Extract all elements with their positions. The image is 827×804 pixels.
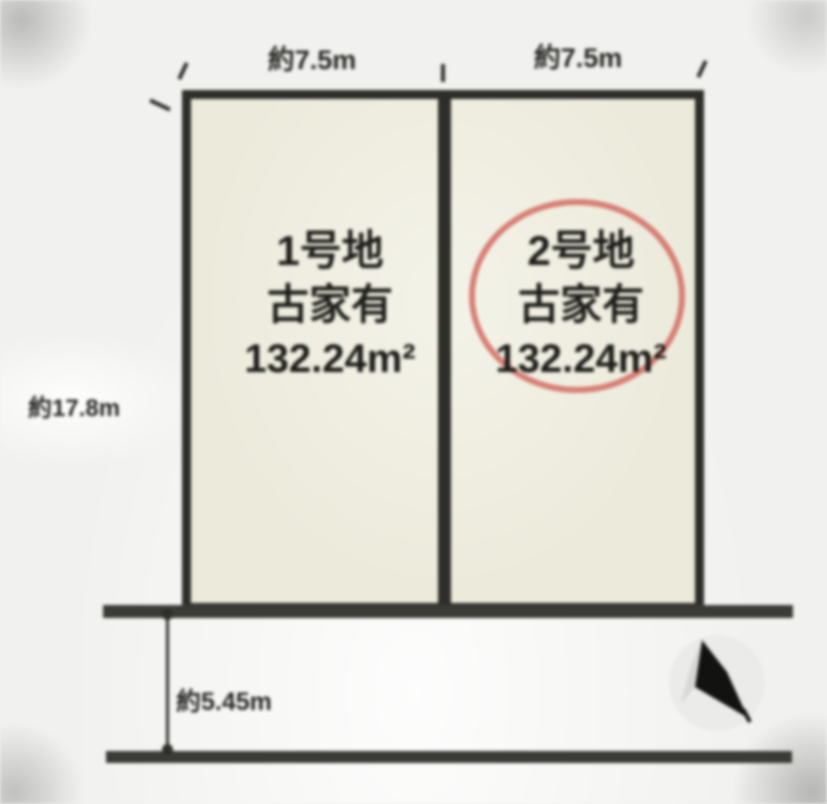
lot-1-label: 1号地 古家有 132.24m² bbox=[200, 224, 460, 386]
lot-1-name: 1号地 bbox=[200, 224, 460, 278]
road-width-dimension: 約5.45m bbox=[176, 682, 272, 718]
north-arrow-icon bbox=[655, 625, 775, 745]
plot-diagram: 1号地 古家有 132.24m² 2号地 古家有 132.24m² 約7.5m … bbox=[0, 0, 827, 804]
lot-2-building-note: 古家有 bbox=[451, 278, 711, 332]
dimension-tick-middle bbox=[441, 64, 445, 82]
dimension-dot-bottom bbox=[162, 744, 173, 755]
lot-2-area: 132.24m² bbox=[451, 332, 711, 386]
lot-2-name: 2号地 bbox=[451, 224, 711, 278]
lot-1-area: 132.24m² bbox=[200, 332, 460, 386]
dimension-tick-depth bbox=[149, 99, 171, 112]
lot-2-frontage-dimension: 約7.5m bbox=[498, 36, 658, 75]
depth-dimension: 約17.8m bbox=[28, 388, 120, 423]
road-edge-bottom bbox=[106, 751, 792, 763]
dimension-tick-left bbox=[177, 62, 188, 80]
road-width-dimension-line bbox=[166, 614, 169, 754]
dimension-tick-right bbox=[696, 60, 707, 78]
dimension-dot-top bbox=[162, 609, 173, 620]
road-edge-top bbox=[103, 605, 793, 618]
lot-2-label: 2号地 古家有 132.24m² bbox=[451, 224, 711, 386]
lot-1-frontage-dimension: 約7.5m bbox=[232, 38, 392, 77]
lot-1-building-note: 古家有 bbox=[200, 278, 460, 332]
